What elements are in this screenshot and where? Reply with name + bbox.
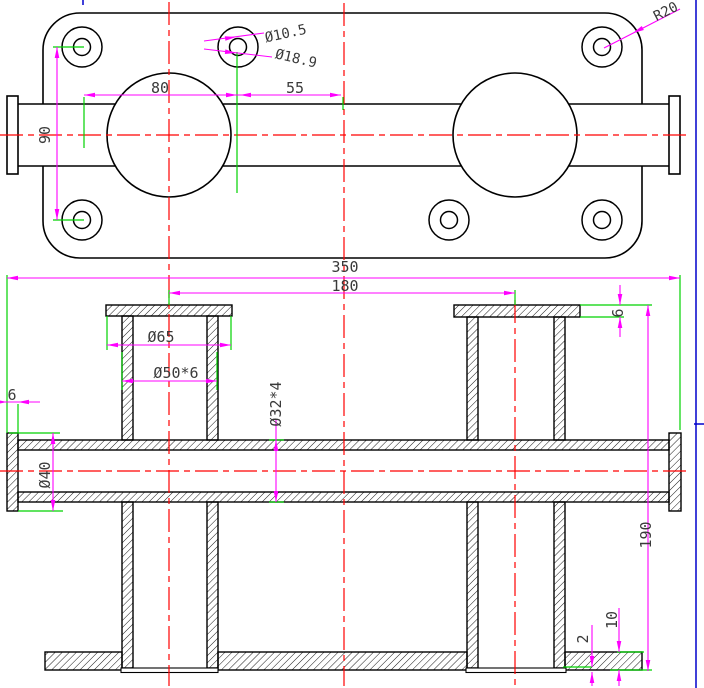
label-dim-190: 190 — [637, 521, 655, 548]
label-dim-350: 350 — [331, 258, 358, 276]
label-socket-tube-spec: Ø50*6 — [153, 364, 198, 382]
label-pipe-flange-thickness: 6 — [7, 386, 16, 404]
left-socket-wall — [207, 316, 218, 440]
label-dim-180: 180 — [331, 277, 358, 295]
label-base-plate-thickness: 10 — [603, 611, 621, 629]
label-dim-55: 55 — [286, 79, 304, 97]
right-socket-wall — [554, 502, 565, 668]
right-socket-wall — [467, 317, 478, 440]
label-dim-80: 80 — [151, 79, 169, 97]
right-socket-wall — [467, 502, 478, 668]
label-dim-90: 90 — [36, 126, 54, 144]
label-pipe-flange-diameter: Ø40 — [36, 461, 54, 488]
base-plate — [218, 652, 467, 670]
cad-drawing-canvas: 80 55 90 Ø10.5 Ø18.9 R20 350 180 Ø65 Ø50… — [0, 0, 704, 688]
left-socket-wall — [122, 502, 133, 668]
label-main-pipe-spec: Ø32*4 — [267, 381, 285, 426]
left-socket-wall — [207, 502, 218, 668]
section-flange-right — [669, 433, 681, 511]
label-socket-flange-thickness: 6 — [609, 308, 627, 317]
tube-end-strip-right — [466, 668, 566, 673]
right-socket-flange — [454, 305, 580, 317]
section-flange-left — [7, 433, 18, 511]
label-socket-flange-diameter: Ø65 — [147, 328, 174, 346]
base-plate — [45, 652, 122, 670]
right-socket-wall — [554, 317, 565, 440]
label-tube-protrusion: 2 — [574, 634, 592, 643]
left-socket-wall — [122, 316, 133, 440]
cad-drawing: 80 55 90 Ø10.5 Ø18.9 R20 350 180 Ø65 Ø50… — [0, 0, 704, 688]
